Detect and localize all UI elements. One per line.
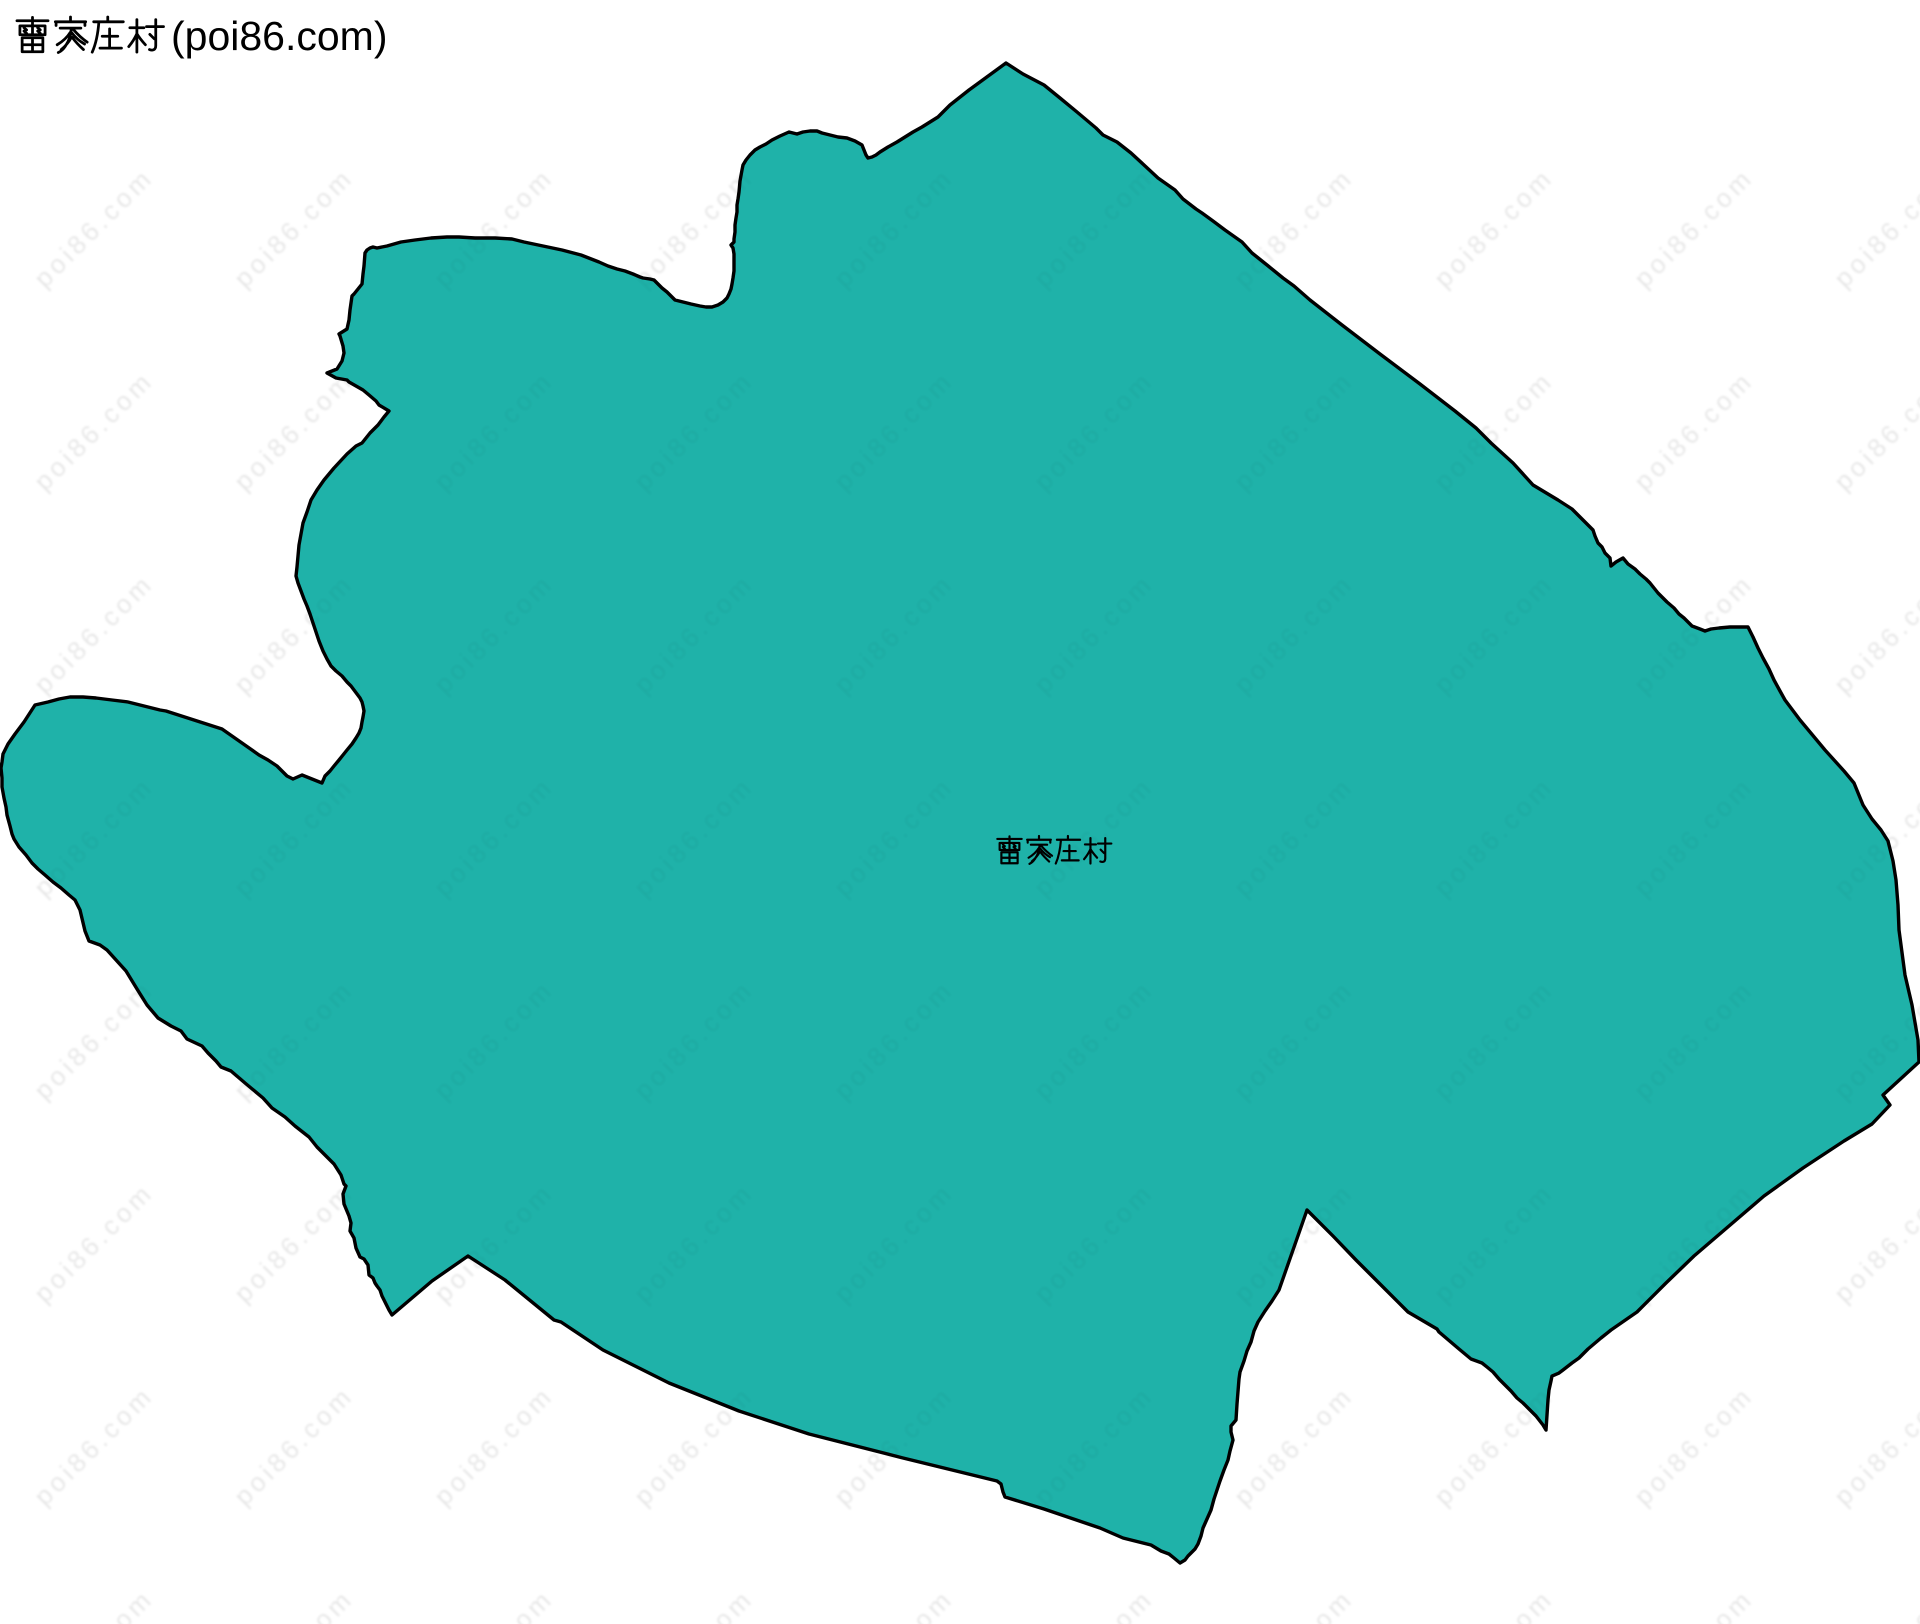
svg-text:(poi86.com): (poi86.com): [171, 13, 387, 59]
